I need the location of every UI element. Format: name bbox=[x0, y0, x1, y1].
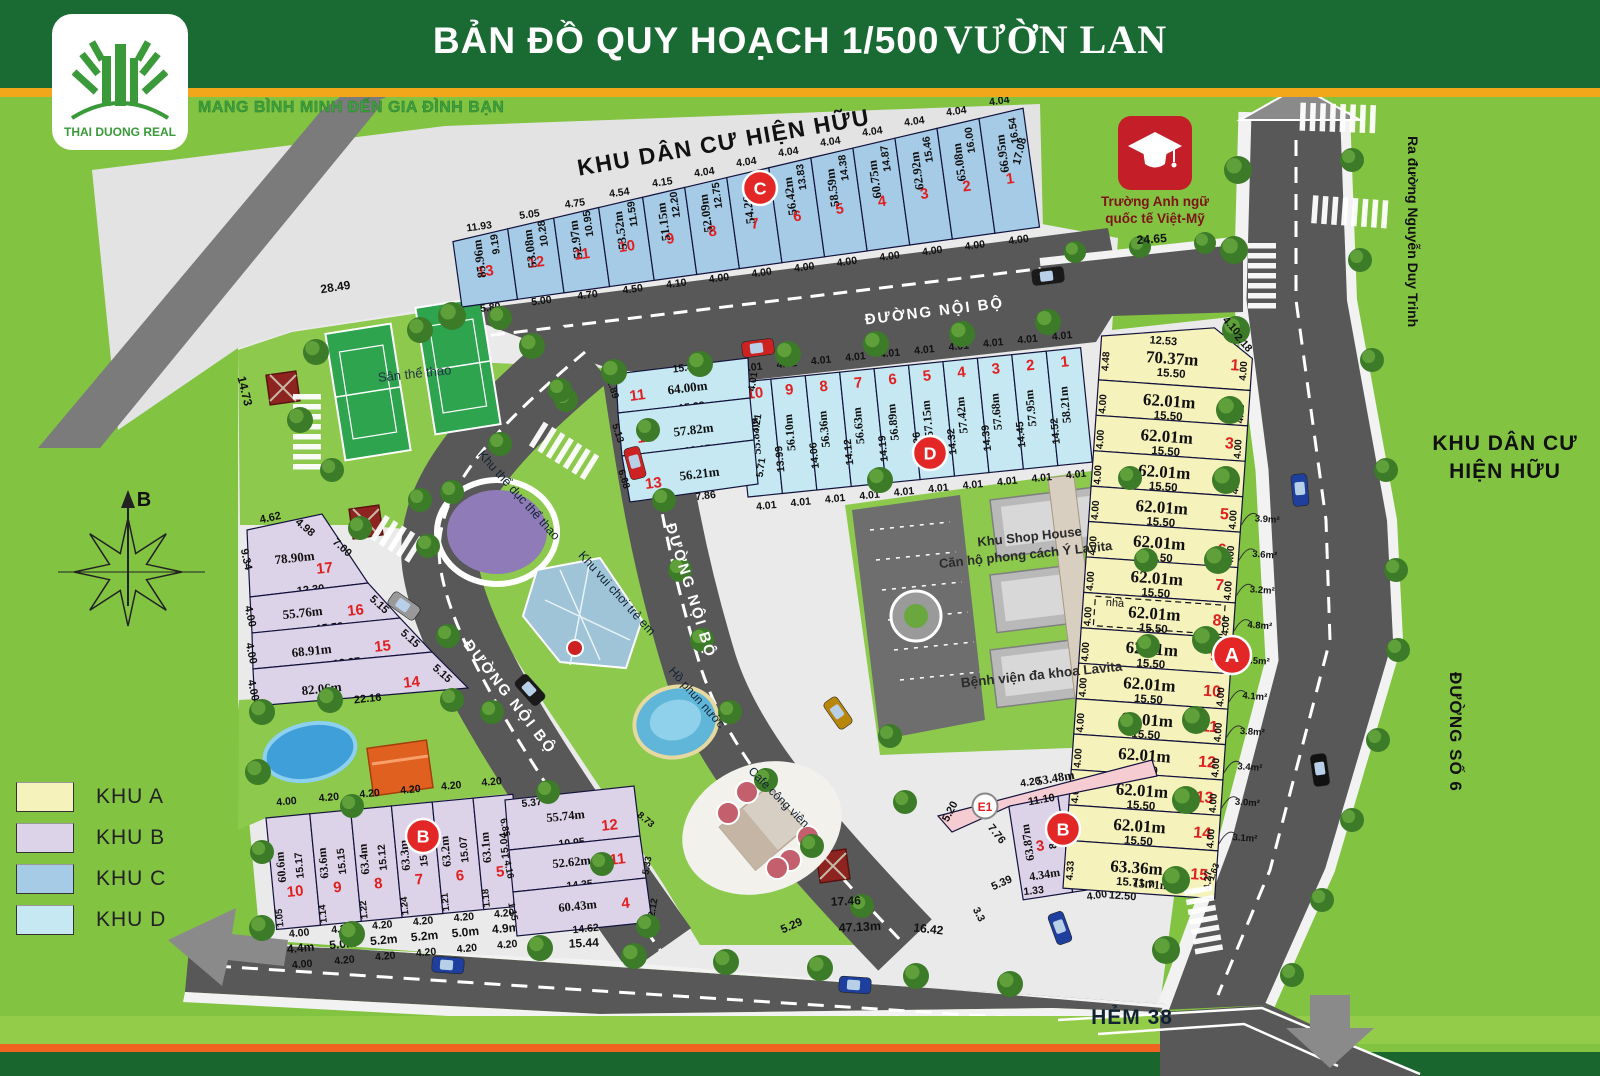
crosswalk bbox=[1248, 243, 1276, 249]
tree-icon bbox=[529, 937, 543, 951]
title-main: BẢN ĐỒ QUY HOẠCH 1/500 bbox=[433, 20, 940, 61]
crosswalk bbox=[293, 444, 321, 450]
tree-icon bbox=[1350, 250, 1363, 263]
map-label: 63.4m bbox=[355, 843, 372, 875]
legend-label: KHU D bbox=[96, 908, 166, 932]
map-label: 6 bbox=[455, 867, 465, 885]
crosswalk bbox=[1248, 283, 1276, 289]
map-label: 4.01 bbox=[996, 475, 1018, 489]
car-icon bbox=[847, 979, 861, 990]
map-label: 4.20 bbox=[441, 779, 463, 793]
compass-north-label: B bbox=[137, 489, 151, 511]
map-label: 4.01 bbox=[982, 336, 1004, 350]
crosswalk bbox=[293, 454, 321, 460]
tree-icon bbox=[440, 304, 455, 319]
map-label: 4.20 bbox=[372, 918, 394, 932]
map-label: 4.01 bbox=[845, 350, 867, 364]
map-label: 4.00 bbox=[288, 926, 310, 940]
crosswalk bbox=[1330, 104, 1336, 132]
map-label: 63.6m bbox=[315, 847, 332, 879]
tree-icon bbox=[1184, 708, 1199, 723]
map-label: 63.1m bbox=[477, 831, 494, 863]
map-label: 8 bbox=[819, 378, 829, 396]
map-label: 4.01 bbox=[756, 499, 778, 513]
road-name: Ra đường Nguyễn Duy Trinh bbox=[1405, 136, 1421, 327]
site-plan-map: 1385.96m9.1911.935.801253.08m10.285.055.… bbox=[0, 0, 1600, 1076]
zone-legend: KHU AKHU BKHU CKHU D bbox=[16, 782, 166, 946]
tree-icon bbox=[1206, 548, 1221, 563]
tree-icon bbox=[603, 361, 617, 375]
map-label: 4.00 bbox=[1092, 464, 1104, 485]
map-label: 4.00 bbox=[1205, 828, 1217, 849]
map-label: 12 bbox=[600, 816, 618, 835]
map-label: B bbox=[1057, 819, 1070, 839]
map-label: 8 bbox=[373, 875, 383, 893]
map-label: nhà bbox=[1105, 597, 1125, 610]
map-label: 10 bbox=[286, 882, 304, 901]
map-label: 4.20 bbox=[318, 791, 340, 805]
map-label: 17 bbox=[315, 559, 333, 578]
legend-swatch bbox=[16, 905, 74, 935]
tree-icon bbox=[638, 420, 651, 433]
map-label: D bbox=[924, 443, 937, 463]
map-label: 15.17 bbox=[292, 852, 306, 879]
map-label: 3 bbox=[991, 360, 1001, 378]
map-label: 1.05 bbox=[274, 907, 287, 927]
map-label: 4.00 bbox=[1075, 712, 1087, 733]
map-label: 4.20 bbox=[453, 911, 475, 925]
umbrella-icon bbox=[736, 781, 758, 803]
car-icon bbox=[1294, 482, 1305, 496]
tree-icon bbox=[1282, 965, 1295, 978]
tree-icon bbox=[1312, 890, 1325, 903]
map-label: 4.48 bbox=[1100, 351, 1112, 372]
tree-icon bbox=[905, 965, 919, 979]
map-label: 1 bbox=[1060, 353, 1070, 371]
map-label: 16 bbox=[346, 601, 364, 620]
map-label: 62.01m bbox=[1123, 673, 1177, 696]
map-label: 7 bbox=[414, 871, 424, 889]
tree-icon bbox=[1037, 311, 1051, 325]
map-label: 4.01 bbox=[810, 354, 832, 368]
map-label: 4.01 bbox=[1065, 468, 1087, 482]
map-label: 62.01m bbox=[1130, 567, 1184, 590]
tree-icon bbox=[289, 409, 303, 423]
tree-icon bbox=[350, 518, 363, 531]
tree-icon bbox=[1226, 158, 1241, 173]
map-label: 70.37m bbox=[1145, 347, 1199, 370]
tree-icon bbox=[1386, 560, 1399, 573]
tree-icon bbox=[715, 951, 729, 965]
map-label: 9 bbox=[784, 381, 794, 399]
umbrella-icon bbox=[766, 857, 788, 879]
map-label: 4.20 bbox=[334, 954, 356, 968]
tree-icon bbox=[550, 380, 563, 393]
map-label: 4.01 bbox=[790, 495, 812, 509]
tree-icon bbox=[252, 842, 265, 855]
school-icon bbox=[1172, 163, 1177, 168]
map-label: 5 bbox=[922, 367, 932, 385]
tree-icon bbox=[809, 957, 823, 971]
map-label: 5.2m bbox=[369, 932, 398, 949]
map-label: 62.01m bbox=[1137, 461, 1191, 484]
tree-icon bbox=[1368, 730, 1381, 743]
tree-icon bbox=[802, 836, 815, 849]
map-label: 4.4m bbox=[286, 940, 315, 957]
dimension-label: 15.44 bbox=[568, 935, 599, 951]
legend-item: KHU C bbox=[16, 864, 166, 894]
tree-icon bbox=[490, 434, 503, 447]
tree-icon bbox=[305, 341, 319, 355]
map-label: 4.00 bbox=[291, 958, 313, 972]
tree-icon bbox=[777, 343, 791, 357]
map-label: 15.15 bbox=[335, 848, 349, 875]
road-name: ĐƯỜNG SỐ 6 bbox=[1446, 672, 1466, 792]
map-label: 4.01 bbox=[914, 343, 936, 357]
tree-icon bbox=[869, 469, 883, 483]
dimension-label: 47.13m bbox=[838, 919, 881, 935]
tree-icon bbox=[895, 792, 908, 805]
plan-map-stage: { "header": { "title_main": "BẢN ĐỒ QUY … bbox=[0, 0, 1600, 1076]
tree-icon bbox=[482, 702, 495, 715]
map-label: 4.00 bbox=[1215, 686, 1227, 707]
map-label: 4.00 bbox=[1227, 509, 1239, 530]
tree-icon bbox=[247, 761, 261, 775]
tree-icon bbox=[251, 701, 265, 715]
dimension-label: 24.65 bbox=[1136, 231, 1167, 247]
map-label: 4.00 bbox=[1208, 793, 1220, 814]
tree-icon bbox=[1196, 234, 1208, 246]
map-label: 4.00 bbox=[1210, 757, 1222, 778]
tree-icon bbox=[251, 917, 265, 931]
tree-icon bbox=[322, 460, 335, 473]
tree-icon bbox=[623, 945, 637, 959]
legend-label: KHU C bbox=[96, 867, 166, 891]
tree-icon bbox=[638, 916, 651, 929]
map-label: 5.0m bbox=[451, 924, 480, 941]
tree-icon bbox=[319, 689, 333, 703]
map-label: 60.6m bbox=[272, 851, 289, 883]
tree-icon bbox=[410, 490, 423, 503]
tree-icon bbox=[1066, 243, 1078, 255]
crosswalk bbox=[1350, 104, 1356, 132]
tree-icon bbox=[1136, 550, 1149, 563]
tree-icon bbox=[1218, 398, 1233, 413]
map-label: E1 bbox=[978, 800, 993, 814]
map-label: 4.00 bbox=[1082, 606, 1094, 627]
tree-icon bbox=[538, 782, 551, 795]
roundabout-green bbox=[904, 604, 928, 628]
road-name: HẺM 38 bbox=[1091, 1006, 1173, 1029]
map-label: 4.33 bbox=[1065, 860, 1077, 881]
map-label: 4.01 bbox=[1031, 471, 1053, 485]
legend-label: KHU B bbox=[96, 826, 165, 850]
map-label: 4.00 bbox=[1090, 500, 1102, 521]
page-title: BẢN ĐỒ QUY HOẠCH 1/500 VƯỜN LAN bbox=[0, 16, 1600, 63]
legend-item: KHU B bbox=[16, 823, 166, 853]
tree-icon bbox=[1120, 468, 1133, 481]
map-label: 62.01m bbox=[1142, 390, 1196, 413]
map-label: 4.00 bbox=[1080, 641, 1092, 662]
map-label: 4.00 bbox=[1232, 439, 1244, 460]
map-label: 4.00 bbox=[1085, 571, 1097, 592]
map-label: 1.14 bbox=[317, 903, 330, 923]
map-label: 4.20 bbox=[481, 775, 503, 789]
map-label: 4.00 bbox=[276, 795, 298, 809]
map-label: B bbox=[417, 826, 430, 846]
legend-swatch bbox=[16, 864, 74, 894]
existing-area-label: HIỆN HỮU bbox=[1449, 459, 1561, 483]
umbrella-icon bbox=[717, 802, 739, 824]
map-label: 15 bbox=[373, 637, 391, 656]
map-label: 11 bbox=[629, 386, 647, 405]
map-label: 4.20 bbox=[456, 942, 478, 956]
legend-swatch bbox=[16, 782, 74, 812]
map-label: 5.2m bbox=[410, 928, 439, 945]
tree-icon bbox=[341, 923, 355, 937]
map-label: 4.01 bbox=[1017, 333, 1039, 347]
map-label: 1.21 bbox=[439, 892, 452, 912]
orange-stripe bbox=[0, 1044, 1290, 1052]
map-label: 4.20 bbox=[375, 950, 397, 964]
tree-icon bbox=[1376, 460, 1389, 473]
car-icon bbox=[440, 959, 454, 970]
crosswalk bbox=[1359, 105, 1365, 133]
map-label: 12.50 bbox=[1108, 889, 1136, 903]
map-label: 62.01m bbox=[1135, 496, 1189, 519]
map-label: 4.00 bbox=[1095, 429, 1107, 450]
map-label: 4.01 bbox=[893, 485, 915, 499]
tree-icon bbox=[689, 353, 703, 367]
map-label: 4.01 bbox=[824, 492, 846, 506]
tree-icon bbox=[1214, 468, 1229, 483]
car-icon bbox=[1039, 270, 1053, 282]
crosswalk bbox=[293, 394, 321, 400]
school-label: Trường Anh ngữ bbox=[1101, 194, 1209, 209]
title-project-name: VƯỜN LAN bbox=[944, 17, 1167, 62]
map-label: 62.01m bbox=[1113, 815, 1167, 838]
map-label: 14 bbox=[402, 673, 421, 692]
map-label: 15.12 bbox=[376, 844, 390, 871]
dimension-label: 1.33 bbox=[1023, 884, 1045, 898]
title-bar-stripe bbox=[0, 88, 1600, 97]
map-label: 1.24 bbox=[399, 895, 412, 915]
tree-icon bbox=[1174, 788, 1189, 803]
map-label: 6 bbox=[888, 371, 898, 389]
map-label: 62.01m bbox=[1128, 602, 1182, 625]
school-icon bbox=[1143, 150, 1167, 168]
fountain-icon bbox=[567, 640, 583, 656]
crosswalk bbox=[1340, 104, 1346, 132]
tree-icon bbox=[1388, 640, 1401, 653]
map-label: 4.00 bbox=[1097, 393, 1109, 414]
logo-tree-icon: THAI DUONG REAL bbox=[52, 14, 188, 150]
tree-icon bbox=[490, 308, 503, 321]
car-icon bbox=[1314, 761, 1326, 775]
tree-icon bbox=[1342, 810, 1355, 823]
tree-icon bbox=[720, 702, 733, 715]
map-label: 15.07 bbox=[457, 836, 471, 863]
tree-icon bbox=[1164, 868, 1179, 883]
car-icon bbox=[749, 342, 763, 354]
tree-icon bbox=[442, 690, 455, 703]
tree-icon bbox=[880, 726, 893, 739]
map-label: 12.53 bbox=[1149, 334, 1177, 348]
dimension-label: 17.46 bbox=[830, 893, 861, 909]
tree-icon bbox=[1154, 938, 1169, 953]
map-label: 7.86 bbox=[695, 489, 717, 503]
map-label: 2 bbox=[1025, 357, 1035, 375]
tree-icon bbox=[1138, 636, 1151, 649]
crosswalk bbox=[1320, 103, 1326, 131]
map-label: 4.00 bbox=[1220, 616, 1232, 637]
map-label: 4.20 bbox=[400, 783, 422, 797]
map-label: 1.18 bbox=[480, 888, 493, 907]
map-label: 1.22 bbox=[358, 900, 371, 919]
tree-icon bbox=[409, 319, 423, 333]
tree-icon bbox=[1194, 628, 1209, 643]
crosswalk bbox=[1248, 293, 1276, 299]
tree-icon bbox=[438, 626, 451, 639]
existing-area-label: KHU DÂN CƯ bbox=[1432, 431, 1577, 455]
logo-text: THAI DUONG REAL bbox=[64, 125, 176, 139]
tree-icon bbox=[1120, 714, 1133, 727]
tree-icon bbox=[865, 333, 879, 347]
map-label: 4.01 bbox=[962, 478, 984, 492]
legend-item: KHU D bbox=[16, 905, 166, 935]
map-label: A bbox=[1225, 645, 1239, 667]
map-label: 4.00 bbox=[1222, 580, 1234, 601]
tree-icon bbox=[521, 335, 535, 349]
crosswalk bbox=[1248, 303, 1276, 309]
tree-icon bbox=[654, 490, 667, 503]
map-label: 4.20 bbox=[359, 787, 381, 801]
crosswalk bbox=[293, 434, 321, 440]
crosswalk bbox=[1248, 253, 1276, 259]
legend-swatch bbox=[16, 823, 74, 853]
map-label: 15.50 bbox=[1156, 367, 1186, 381]
crosswalk bbox=[1248, 263, 1276, 269]
tree-icon bbox=[442, 482, 455, 495]
school-label: quốc tế Việt-Mỹ bbox=[1105, 211, 1205, 226]
tree-icon bbox=[592, 854, 605, 867]
tree-icon bbox=[1362, 350, 1375, 363]
crosswalk bbox=[1248, 273, 1276, 279]
crosswalk bbox=[1300, 103, 1306, 131]
map-label: 4.00 bbox=[1238, 360, 1250, 381]
map-label: 4.01 bbox=[928, 482, 950, 496]
map-label: 62.01m bbox=[1140, 425, 1194, 448]
legend-label: KHU A bbox=[96, 785, 164, 809]
tree-icon bbox=[1222, 238, 1237, 253]
map-label: 4.20 bbox=[496, 938, 518, 952]
map-label: 7 bbox=[853, 374, 863, 392]
map-label: 4.00 bbox=[1072, 748, 1084, 769]
crosswalk bbox=[1369, 105, 1375, 133]
map-label: 4.20 bbox=[412, 914, 434, 928]
map-label: C bbox=[754, 178, 767, 198]
tree-icon bbox=[1342, 150, 1355, 163]
tree-icon bbox=[999, 973, 1013, 987]
map-label: 9 bbox=[333, 879, 343, 897]
tree-icon bbox=[342, 796, 355, 809]
legend-item: KHU A bbox=[16, 782, 166, 812]
map-label: 4.00 bbox=[1077, 677, 1089, 698]
tree-icon bbox=[418, 536, 431, 549]
company-slogan: MANG BÌNH MINH ĐẾN GIA ĐÌNH BẠN bbox=[198, 99, 504, 117]
tree-icon bbox=[951, 323, 965, 337]
company-logo: THAI DUONG REAL bbox=[52, 14, 188, 150]
crosswalk bbox=[293, 464, 321, 470]
crosswalk bbox=[1310, 103, 1316, 131]
map-label: 4.00 bbox=[1213, 722, 1225, 743]
